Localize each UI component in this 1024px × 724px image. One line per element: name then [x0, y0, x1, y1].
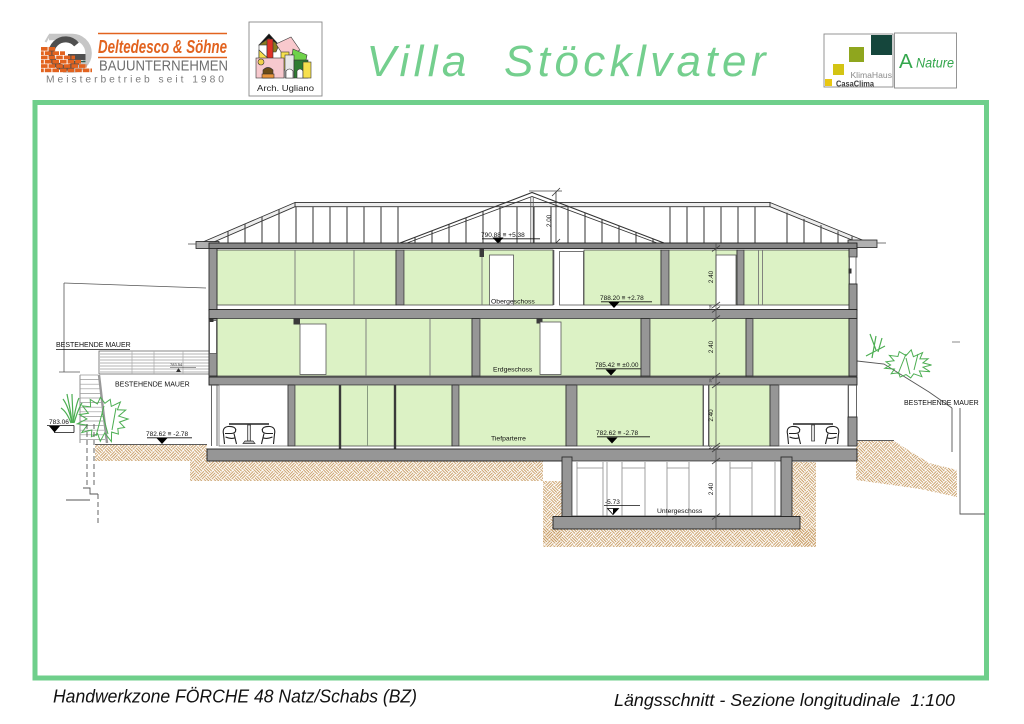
svg-text:783.54: 783.54	[170, 362, 183, 367]
svg-text:BESTEHENDE MAUER: BESTEHENDE MAUER	[904, 400, 979, 407]
svg-text:783.06: 783.06	[49, 419, 69, 426]
svg-text:BAUUNTERNEHMEN: BAUUNTERNEHMEN	[99, 58, 228, 75]
svg-text:Arch. Ugliano: Arch. Ugliano	[257, 83, 314, 93]
svg-text:782.62 ≡ -2.78: 782.62 ≡ -2.78	[146, 431, 188, 438]
svg-text:Meisterbetrieb seit 1980: Meisterbetrieb seit 1980	[46, 75, 227, 86]
svg-text:2.40: 2.40	[708, 270, 715, 283]
svg-text:38: 38	[709, 305, 713, 309]
svg-text:Längsschnitt - Sezione longitu: Längsschnitt - Sezione longitudinale 1:1…	[614, 690, 955, 710]
svg-text:2.40: 2.40	[708, 340, 715, 353]
svg-text:KlimaHaus: KlimaHaus	[850, 70, 892, 80]
svg-text:Tiefparterre: Tiefparterre	[491, 436, 526, 443]
svg-text:Handwerkzone FÖRCHE 48 Natz/Sc: Handwerkzone FÖRCHE 48 Natz/Schabs (BZ)	[53, 686, 417, 707]
svg-text:38: 38	[709, 379, 713, 383]
svg-text:Obergeschoss: Obergeschoss	[491, 299, 535, 306]
svg-text:788.20 ≡ +2.78: 788.20 ≡ +2.78	[600, 295, 644, 302]
svg-text:785.42 ≡ ±0.00: 785.42 ≡ ±0.00	[595, 362, 639, 369]
svg-text:A: A	[899, 50, 913, 73]
svg-text:Erdgeschoss: Erdgeschoss	[493, 367, 533, 374]
svg-text:-5.73: -5.73	[605, 499, 620, 506]
svg-text:Nature: Nature	[916, 56, 954, 71]
svg-text:2.40: 2.40	[708, 409, 715, 422]
svg-text:Untergeschoss: Untergeschoss	[657, 508, 703, 515]
svg-text:2.00: 2.00	[546, 214, 553, 227]
svg-text:BESTEHENDE MAUER: BESTEHENDE MAUER	[115, 382, 190, 389]
svg-text:2.40: 2.40	[708, 482, 715, 495]
svg-text:CasaClima: CasaClima	[836, 80, 875, 89]
svg-text:Deltedesco & Söhne: Deltedesco & Söhne	[98, 37, 227, 57]
svg-text:BESTEHENDE MAUER: BESTEHENDE MAUER	[56, 342, 131, 349]
svg-text:46: 46	[709, 446, 713, 450]
svg-text:782.62 ≡ -2.78: 782.62 ≡ -2.78	[596, 430, 638, 437]
